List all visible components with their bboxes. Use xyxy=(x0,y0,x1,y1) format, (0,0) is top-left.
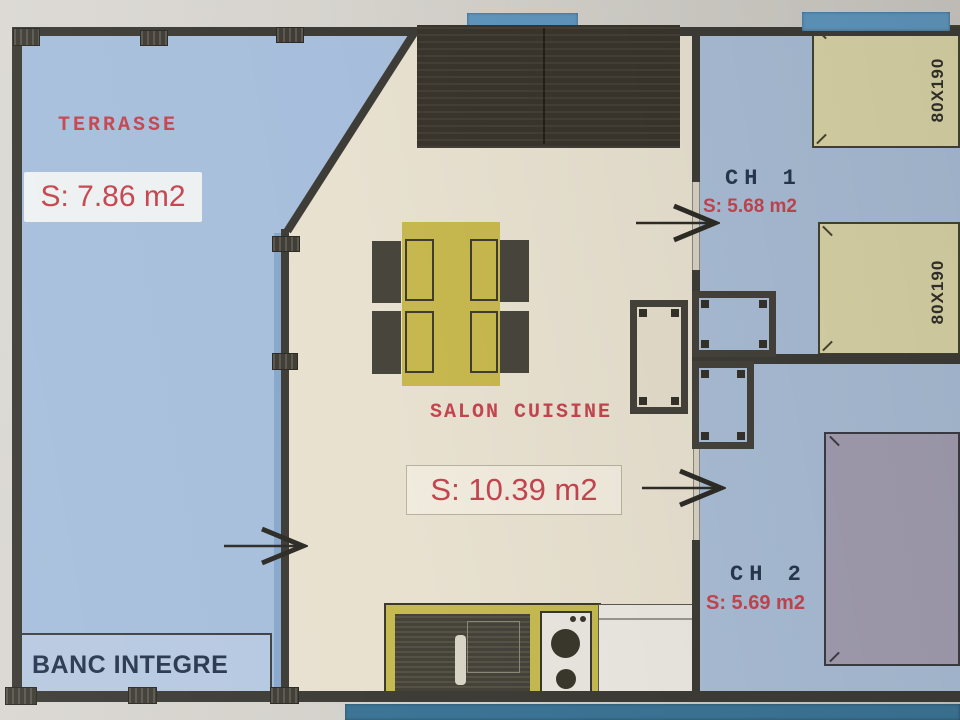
deck-post-6 xyxy=(5,687,37,705)
sink-basin-outline xyxy=(467,621,520,673)
wall-salon-ch1-upper xyxy=(692,32,700,182)
salon-label: SALON CUISINE xyxy=(406,401,636,424)
bedroom1-area-label: S: 5.68 m2 xyxy=(703,196,797,218)
deck-post-8 xyxy=(270,687,299,704)
bedroom1-label: CH 1 xyxy=(725,166,802,191)
seat-outline-left-top xyxy=(405,239,434,301)
burner-large xyxy=(551,629,580,658)
burner-small xyxy=(556,669,576,689)
deck-post-3 xyxy=(276,27,304,43)
terrace-label: TERRASSE xyxy=(58,114,178,137)
wardrobe-salon xyxy=(630,300,688,414)
window-top-right xyxy=(802,12,950,31)
deck-post-7 xyxy=(128,687,157,704)
wardrobe-post-dot xyxy=(701,300,709,308)
wardrobe-post-dot xyxy=(701,340,709,348)
deck-post-2 xyxy=(140,30,168,46)
deck-post-4 xyxy=(272,236,300,252)
wardrobe-ch2 xyxy=(692,361,754,449)
deck-post-1 xyxy=(13,28,40,46)
bed-double xyxy=(824,432,960,666)
chair-left-bottom xyxy=(372,311,401,374)
deck-post-5 xyxy=(272,353,298,370)
terrace-area-label: S: 7.86 m2 xyxy=(40,180,185,214)
wall-salon-ch2 xyxy=(692,540,700,698)
salon-area-label: S: 10.39 m2 xyxy=(430,472,597,508)
wardrobe-post-dot xyxy=(671,309,679,317)
seat-outline-left-bottom xyxy=(405,311,434,373)
wardrobe-post-dot xyxy=(639,309,647,317)
chair-left-top xyxy=(372,241,401,303)
wardrobe-ch1 xyxy=(692,291,776,357)
terrace-wall-shadow xyxy=(274,233,281,693)
bedroom2-label: CH 2 xyxy=(730,562,807,587)
stove-knob-2 xyxy=(580,616,586,622)
chair-right-top xyxy=(500,240,529,302)
wardrobe-post-dot xyxy=(701,370,709,378)
floor-plan: BANC INTEGRE 80X190 80X190 xyxy=(0,0,960,720)
fridge-top-line xyxy=(599,618,692,620)
door-arrow-ch2-icon xyxy=(640,468,726,508)
bed1-size-label: 80X190 xyxy=(928,50,948,130)
faucet xyxy=(455,635,466,685)
fridge-unit xyxy=(598,604,693,701)
seat-outline-right-bottom xyxy=(470,311,498,373)
wardrobe-post-dot xyxy=(701,432,709,440)
kitchen-cabinet-block xyxy=(417,25,680,148)
wall-left xyxy=(12,27,22,702)
wardrobe-post-dot xyxy=(737,370,745,378)
wall-terrace-salon xyxy=(281,229,289,698)
bed2-size-label: 80X190 xyxy=(928,252,948,332)
wardrobe-post-dot xyxy=(671,397,679,405)
cabinet-seam xyxy=(543,28,545,144)
wardrobe-post-dot xyxy=(737,432,745,440)
door-arrow-terrace-icon xyxy=(222,526,308,566)
wardrobe-post-dot xyxy=(759,300,767,308)
chair-right-bottom xyxy=(500,311,529,373)
stove-knob-1 xyxy=(570,616,576,622)
seat-outline-right-top xyxy=(470,239,498,301)
wardrobe-post-dot xyxy=(639,397,647,405)
bedroom2-area-label: S: 5.69 m2 xyxy=(706,592,805,615)
window-bottom-strip xyxy=(345,704,960,720)
bench-label: BANC INTEGRE xyxy=(18,651,228,680)
salon-area-box: S: 10.39 m2 xyxy=(406,465,622,515)
terrace-area-box: S: 7.86 m2 xyxy=(24,172,202,222)
wardrobe-post-dot xyxy=(759,340,767,348)
